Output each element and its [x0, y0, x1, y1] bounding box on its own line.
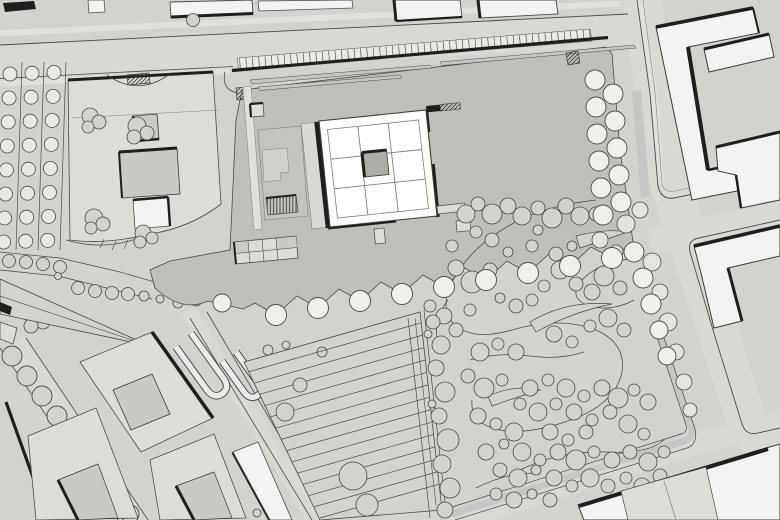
park-trees-tree	[571, 207, 589, 225]
scattered-trees-tree	[282, 341, 290, 349]
park-trees-tree	[533, 225, 543, 235]
park-trees-tree	[599, 309, 617, 327]
park-trees-tree	[542, 374, 554, 386]
plaza-east-tree-row-tree	[611, 192, 631, 212]
roadside-tree-row-tree	[658, 347, 676, 365]
park-trees-tree	[639, 453, 657, 471]
plaza-tree-row-tree	[392, 284, 413, 305]
park-trees-tree	[623, 445, 637, 459]
plaza-tree-row-tree	[350, 291, 371, 312]
north-building	[88, 0, 105, 13]
park-trees-tree	[432, 336, 450, 354]
park-trees-tree	[522, 380, 538, 396]
park-trees-tree	[566, 404, 582, 420]
plaza-east-tree-row-tree	[605, 111, 625, 131]
path-trees-tree	[54, 261, 67, 274]
orchard-trees-tree	[42, 209, 56, 223]
park-trees-tree	[474, 378, 494, 398]
park-light-trees-tree	[632, 202, 648, 218]
park-trees-tree	[531, 465, 541, 475]
garden-trees-tree	[356, 494, 378, 516]
park-trees-tree	[538, 280, 550, 292]
park-trees-tree	[594, 266, 614, 286]
park-trees-tree	[604, 452, 620, 468]
orchard-trees-tree	[41, 233, 55, 247]
park-trees-tree	[603, 405, 617, 419]
park-trees-tree	[464, 304, 476, 316]
roadside-tree-row-tree	[641, 294, 661, 314]
park-trees-tree	[620, 472, 632, 484]
bottomleft-blocks-shape-17	[253, 509, 261, 517]
orchard-trees-tree	[21, 186, 35, 200]
orchard-trees-tree	[2, 91, 16, 105]
plaza-tree-row-tree	[602, 248, 623, 269]
service-box	[250, 103, 264, 117]
park-trees-tree	[578, 390, 590, 402]
roadside-tree-row-tree	[624, 242, 644, 262]
park-trees-tree	[581, 469, 599, 487]
park-trees-tree	[586, 414, 598, 426]
park-trees-tree	[534, 454, 546, 466]
park-trees-tree	[567, 241, 577, 251]
path-trees-tree	[37, 258, 50, 271]
cloud-trees-tree	[140, 126, 154, 140]
stair-hatch	[566, 51, 580, 65]
park-trees-tree	[431, 408, 447, 424]
park-trees-tree	[428, 360, 444, 376]
park-trees-tree	[546, 470, 562, 486]
park-trees-tree	[617, 323, 631, 337]
park-trees-tree	[478, 444, 494, 460]
top-buildings-shape-4	[394, 0, 396, 21]
park-trees-tree	[529, 403, 547, 421]
orchard-trees-tree	[20, 210, 34, 224]
park-trees-tree	[437, 429, 459, 451]
garden-trees-tree	[339, 462, 367, 490]
orchard-trees-tree	[47, 65, 61, 79]
inner-hall-building	[119, 148, 180, 198]
park-trees-tree	[424, 330, 432, 338]
park-trees-tree	[569, 277, 583, 291]
cloud-trees-tree	[146, 232, 158, 244]
entrance-stair-hatch	[127, 73, 150, 85]
orchard-trees-tree	[46, 89, 60, 103]
plaza-east-tree-row-tree	[609, 165, 629, 185]
park-trees-tree	[505, 423, 523, 441]
park-trees-tree	[509, 299, 523, 313]
path-trees-tree	[122, 288, 135, 301]
park-trees-tree	[584, 284, 600, 300]
plaza-tree-row-tree	[308, 298, 329, 319]
park-trees-tree	[619, 415, 637, 433]
orchard-trees-tree	[43, 185, 57, 199]
plaza-tree-row-tree	[518, 263, 539, 284]
park-trees-tree	[499, 439, 509, 449]
park-light-trees-tree	[676, 374, 692, 390]
central-building-shape-25	[374, 228, 386, 244]
garden-trees-tree	[276, 403, 294, 421]
orchard-trees-tree	[45, 113, 59, 127]
park-trees-tree	[433, 455, 451, 473]
roadside-tree-row-tree	[633, 268, 653, 288]
park-trees-tree	[461, 369, 475, 383]
orchard-trees-tree	[0, 187, 13, 201]
park-trees-tree	[490, 418, 502, 430]
park-trees-tree	[509, 469, 527, 487]
path-trees-tree	[72, 282, 85, 295]
path-trees-tree	[3, 255, 16, 268]
garden-trees-tree	[293, 378, 307, 392]
park-trees-tree	[566, 450, 586, 470]
park-trees-tree	[566, 480, 578, 492]
park-trees-tree	[638, 428, 650, 440]
park-trees-tree	[543, 493, 557, 507]
path-trees-tree	[20, 256, 33, 269]
park-trees-tree	[482, 204, 502, 224]
park-trees-tree	[550, 444, 566, 460]
park-trees-tree	[446, 240, 458, 252]
orchard-trees-tree	[43, 161, 57, 175]
park-trees-tree	[471, 197, 485, 211]
park-light-trees-tree	[592, 232, 608, 248]
park-trees-tree	[426, 315, 440, 329]
cloud-trees-tree	[127, 130, 141, 144]
cloud-trees-tree	[96, 217, 110, 231]
orchard-trees-tree	[21, 162, 35, 176]
orchard-trees-tree	[19, 234, 33, 248]
orchard-trees-tree	[22, 138, 36, 152]
park-trees-tree	[437, 502, 453, 518]
path-trees-tree	[139, 291, 149, 301]
plaza-tree-row-tree	[213, 294, 231, 312]
park-trees-tree	[485, 233, 499, 247]
park-trees-tree	[531, 201, 545, 215]
park-trees-tree	[557, 379, 575, 397]
street-tree-row-tree	[32, 386, 52, 406]
orchard-trees-tree	[0, 139, 14, 153]
park-trees-tree	[558, 198, 574, 214]
park-trees-tree	[542, 208, 562, 228]
street-tree-row-tree	[2, 346, 22, 366]
park-trees-tree	[513, 443, 531, 461]
orchard-trees-tree	[24, 90, 38, 104]
street-tree-row-tree	[17, 366, 37, 386]
park-trees-tree	[584, 320, 596, 332]
plaza-east-tree-row-tree	[607, 138, 627, 158]
central-building-shape-5	[250, 103, 263, 104]
park-light-trees-tree	[683, 403, 697, 417]
orchard-trees-tree	[23, 114, 37, 128]
path-trees-tree	[106, 287, 119, 300]
park-trees-tree	[514, 398, 526, 410]
central-building-shape-6	[250, 104, 251, 117]
plaza-east-tree-row-tree	[591, 178, 611, 198]
plaza-east-tree-row-tree	[587, 124, 607, 144]
cloud-trees-tree	[134, 236, 146, 248]
park-trees-tree	[493, 463, 507, 477]
plaza-east-tree-row-tree	[589, 151, 609, 171]
park-trees-tree	[496, 374, 508, 386]
park-trees-tree	[588, 446, 600, 458]
path-trees-tree	[156, 295, 164, 303]
path-trees-tree	[89, 285, 102, 298]
cloud-trees-tree	[85, 222, 97, 234]
park-trees-tree	[562, 434, 574, 446]
park-trees-tree	[550, 398, 562, 410]
plaza-tree-row-tree	[266, 305, 287, 326]
park-trees-tree	[470, 226, 482, 238]
orchard-trees-tree	[0, 235, 11, 249]
park-trees-tree	[628, 384, 640, 396]
orchard-trees-tree	[0, 163, 13, 177]
park-trees-tree	[526, 240, 538, 252]
park-trees-tree	[492, 338, 504, 350]
orchard-trees-tree	[44, 137, 58, 151]
site-plan-svg	[0, 0, 780, 520]
roadside-tree-row-tree	[650, 321, 668, 339]
park-trees-tree	[526, 294, 538, 306]
path-trees-tree	[55, 273, 62, 280]
plaza-east-tree-row-tree	[586, 97, 606, 117]
park-trees-tree	[549, 247, 563, 261]
plaza-east-tree-row-tree	[603, 84, 623, 104]
orchard-trees-tree	[1, 115, 15, 129]
plaza-east-tree-row-tree	[585, 70, 605, 90]
plaza-tree-row-tree	[434, 277, 455, 298]
plaza-east-tree-row-tree	[593, 205, 613, 225]
orchard-trees-tree	[0, 211, 12, 225]
park-trees-tree	[613, 281, 627, 295]
orchard-trees-tree	[3, 67, 17, 81]
park-light-trees-tree	[617, 215, 635, 233]
park-trees-tree	[513, 207, 531, 225]
park-trees-tree	[594, 380, 610, 396]
park-trees-tree	[546, 326, 562, 342]
park-trees-tree	[527, 489, 537, 499]
scattered-trees-tree	[263, 345, 273, 355]
courtyard-void	[362, 150, 389, 177]
street-tree	[187, 14, 200, 27]
park-trees-tree	[435, 382, 455, 402]
park-trees-tree	[495, 293, 505, 303]
park-trees-tree	[448, 260, 464, 276]
white-annex	[133, 197, 170, 229]
park-trees-tree	[449, 323, 463, 337]
park-trees-tree	[503, 247, 513, 257]
park-trees-tree	[542, 424, 558, 440]
architectural-site-plan	[0, 0, 780, 520]
park-trees-tree	[601, 479, 615, 493]
park-trees-tree	[490, 488, 502, 500]
park-trees-tree	[470, 408, 486, 424]
park-trees-tree	[579, 425, 593, 439]
orchard-trees-tree	[25, 66, 39, 80]
top-buildings-shape-7	[478, 0, 480, 18]
plaza-tree-row-tree	[560, 256, 581, 277]
park-trees-tree	[500, 198, 516, 214]
park-trees-tree	[640, 394, 656, 410]
park-trees-tree	[428, 400, 436, 408]
park-trees-tree	[566, 336, 578, 348]
cloud-trees-tree	[82, 121, 94, 133]
plaza-tree-row-tree	[476, 270, 497, 291]
park-trees-tree	[440, 478, 460, 498]
park-trees-tree	[508, 344, 524, 360]
park-trees-tree	[506, 492, 522, 508]
park-trees-tree	[471, 343, 489, 361]
park-trees-tree	[424, 300, 436, 312]
park-trees-tree	[658, 446, 670, 458]
